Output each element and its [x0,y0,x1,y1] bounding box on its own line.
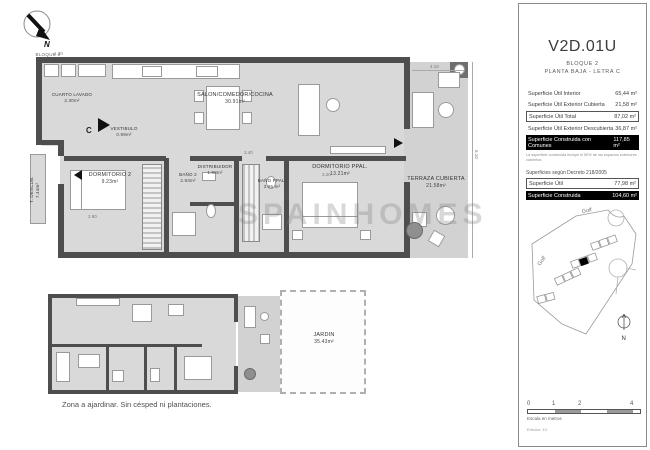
wall [58,184,64,258]
wall [64,156,166,161]
kitchen-counter-small [76,298,120,306]
garden-area: JARDIN 35.43m² [280,290,366,394]
terrace-sofa-small [244,306,256,328]
kitchen-sink [142,66,162,77]
surface-table: Superficie Útil Interior 65,44 m² Superf… [526,89,639,150]
toilet [206,204,216,218]
wall [36,57,42,145]
terrace-chair-small [260,334,270,344]
scale-bar: 0 1 2 4 Escala en metros Edición: 10 [527,401,641,432]
surface-row: Superficie Útil Exterior Descubierta 36,… [526,124,639,133]
dryer [61,64,76,77]
shower-small [112,370,124,382]
garden-floor-plan: JARDIN 35.43m² [48,290,373,398]
scale-tick: 1 [552,401,555,407]
entrance-letter: C [86,126,92,135]
side-table [326,98,340,112]
dim-text: 1.30 [54,51,63,56]
scale-tick: 0 [527,401,530,407]
room-label-cuarto-lavado: CUARTO LAVADO 2.30m² [44,92,100,104]
kitchen-counter [112,64,240,79]
terrace-sofa-2 [438,72,460,88]
room-label-salon: SALON/COMEDOR/COCINA 30.91m² [170,92,300,106]
surface-row: Superficie Útil Interior 65,44 m² [526,89,639,98]
surface-row: Superficie Útil Exterior Cubierta 21,58 … [526,100,639,109]
wall [106,347,109,394]
svg-text:N: N [44,40,50,49]
wall [174,347,177,394]
dim-text: 3.40 [244,150,253,155]
map-compass-icon: N [618,314,630,342]
bed-main-small [184,356,212,380]
surface-note: La superficie construida incluye el 50% … [526,153,639,162]
plant-small [244,368,256,380]
sofa [298,84,320,136]
fixture-small [150,368,160,382]
tv-unit [330,146,386,154]
unit-block: BLOQUE 2 [519,61,646,67]
decree-heading: Superficies según Decreto 218/2005 [526,170,639,176]
dim-text: 2.80 [88,214,97,219]
floorplan-sheet: { "meta": { "watermark": "SPAINHOMES" },… [0,0,650,450]
laundry-counter [78,64,106,77]
unit-floor: PLANTA BAJA - LETRA C [519,69,646,75]
surface-row-total: Superficie Útil Total 87,02 m² [526,111,639,122]
north-arrow-icon: N [14,6,62,50]
stove [196,66,218,77]
wall [58,140,64,156]
site-map: Golf Golf N [524,204,642,352]
wall [36,57,408,63]
dim-text: 6.10 [474,150,479,159]
golf-label-left: Golf [536,255,547,267]
room-label-vestibulo: VESTIBULO 0.99m² [96,126,152,138]
sofa-small [168,304,184,316]
room-label-dormitorio-2: DORMITORIO 2 9.23m² [70,172,150,186]
edition-label: Edición: 10 [527,427,641,432]
wall [48,390,238,394]
terrace-table-small [260,312,269,321]
wall [144,347,147,394]
room-label-dormitorio-ppal: DORMITORIO PPAL. 13.21m² [290,164,390,178]
decree-row: Superficie Útil 77,98 m² [526,178,639,189]
room-label-bano-2: BAÑO 2 2.93m² [168,172,208,184]
shower [172,212,196,236]
table-small [132,304,152,322]
scale-tick: 4 [630,401,633,407]
decree-row: Superficie Construida 104,60 m² [526,191,639,200]
scale-tick: 2 [578,401,581,407]
terrace-access-arrow-icon [394,138,403,148]
washer [44,64,59,77]
unit-title: V2D.01U [519,38,646,56]
scale-caption: Escala en metros [527,416,641,421]
garden-label: JARDIN 35.43m² [296,332,352,346]
room-label-t-descub: T. DESCUB. 7.44m² [29,162,43,218]
wall [404,57,410,129]
bed-small-2 [78,354,100,368]
golf-label-top: Golf [581,207,592,215]
chair [194,112,204,124]
info-sidebar: V2D.01U BLOQUE 2 PLANTA BAJA - LETRA C S… [518,3,647,447]
dim-line [412,70,464,71]
room-label-bano-ppal: BAÑO PPAL. 3.86 m² [252,178,292,190]
main-floor-plan: C 1.30 2.80 3.20 3.40 4.10 6.10 CUARTO L… [30,54,480,269]
terrace-sofa [412,92,434,128]
terrace-table [438,102,454,118]
chair [242,112,252,124]
svg-text:N: N [621,336,625,342]
bed-small [56,352,70,382]
watermark: SPAINHOMES [238,198,487,232]
wall [52,344,202,347]
surface-row-constructed: Superficie Construida con Comunes 117,85… [526,135,639,150]
garden-caption: Zona a ajardinar. Sin césped ni plantaci… [62,400,212,409]
room-label-terraza: TERRAZA CUBIERTA 21.58m² [404,176,468,190]
dim-text: 4.10 [430,64,439,69]
decree-table: Superficie Útil 77,98 m² Superficie Cons… [526,178,639,200]
